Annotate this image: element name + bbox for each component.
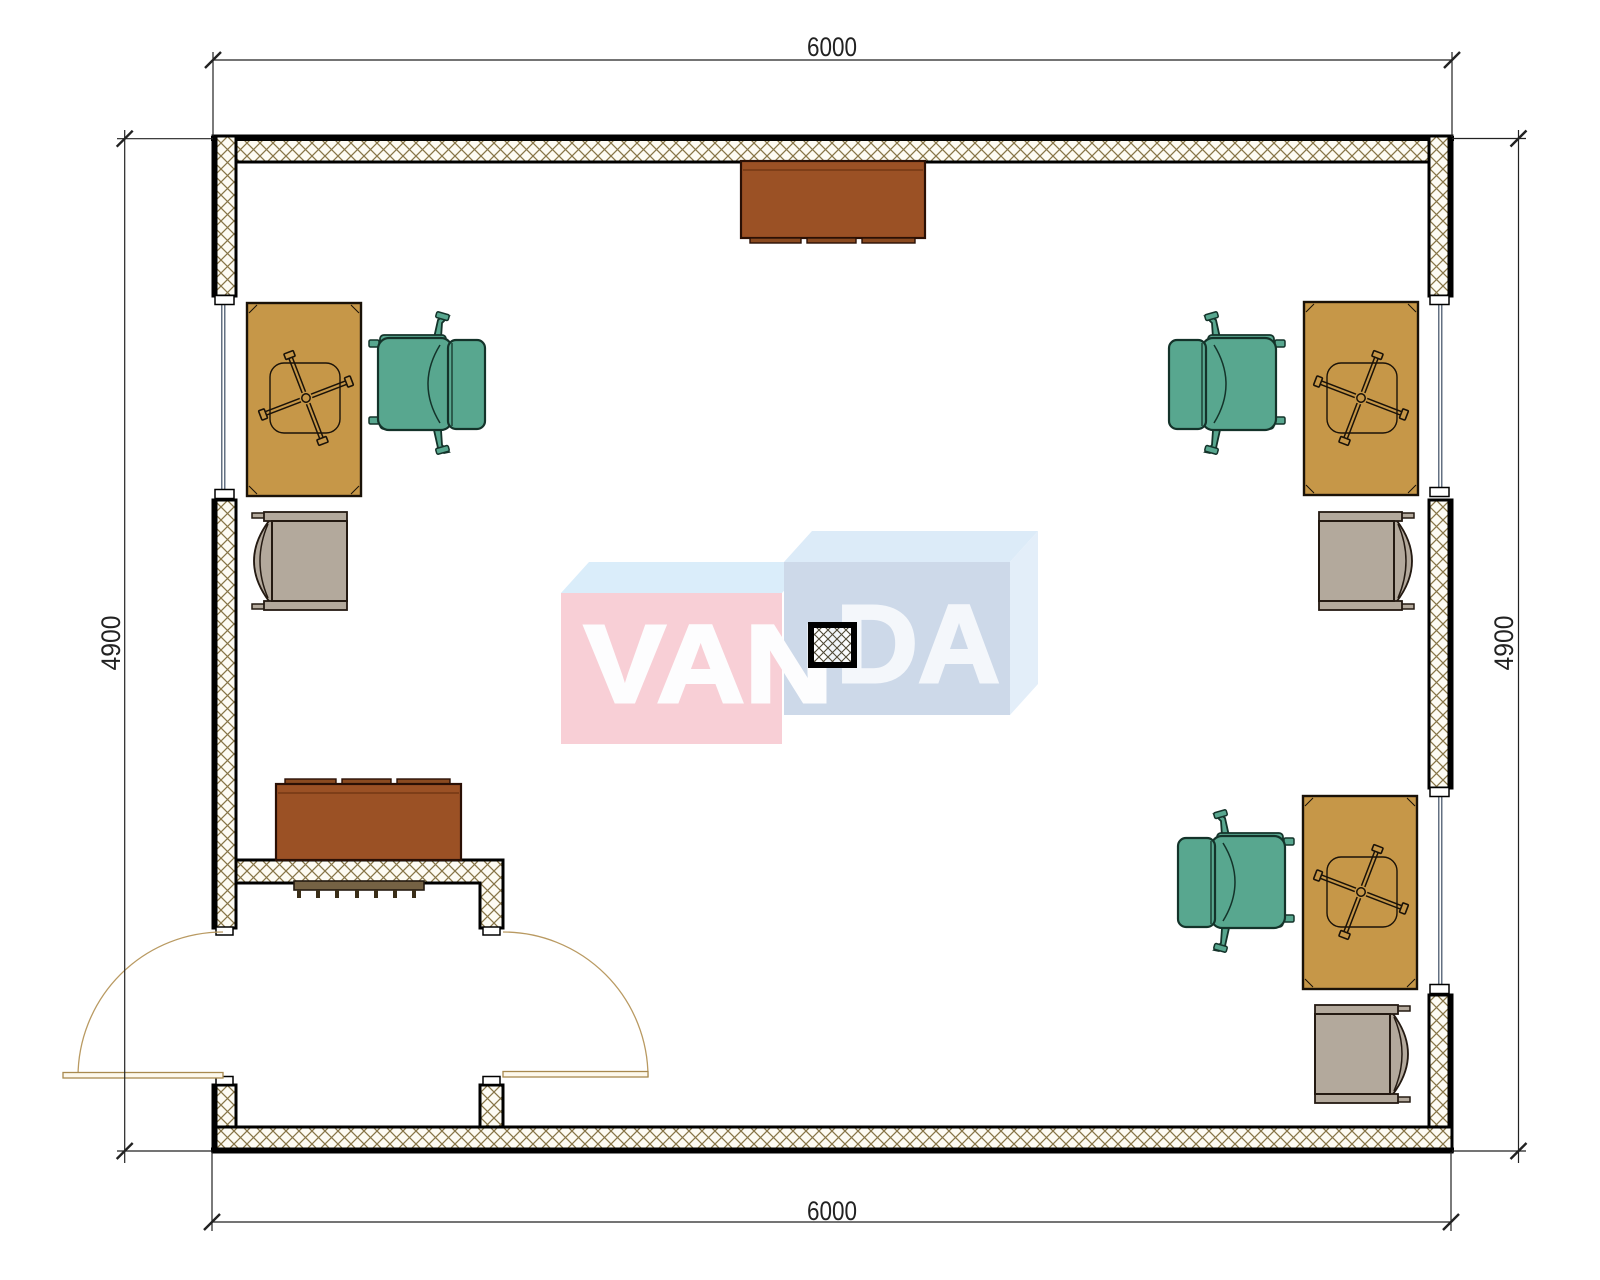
svg-text:DA: DA [836,583,1000,706]
svg-text:4900: 4900 [1489,616,1519,671]
svg-text:4900: 4900 [96,616,126,671]
svg-text:6000: 6000 [807,32,857,62]
svg-text:6000: 6000 [807,1196,857,1226]
svg-text:VAN: VAN [584,603,833,726]
